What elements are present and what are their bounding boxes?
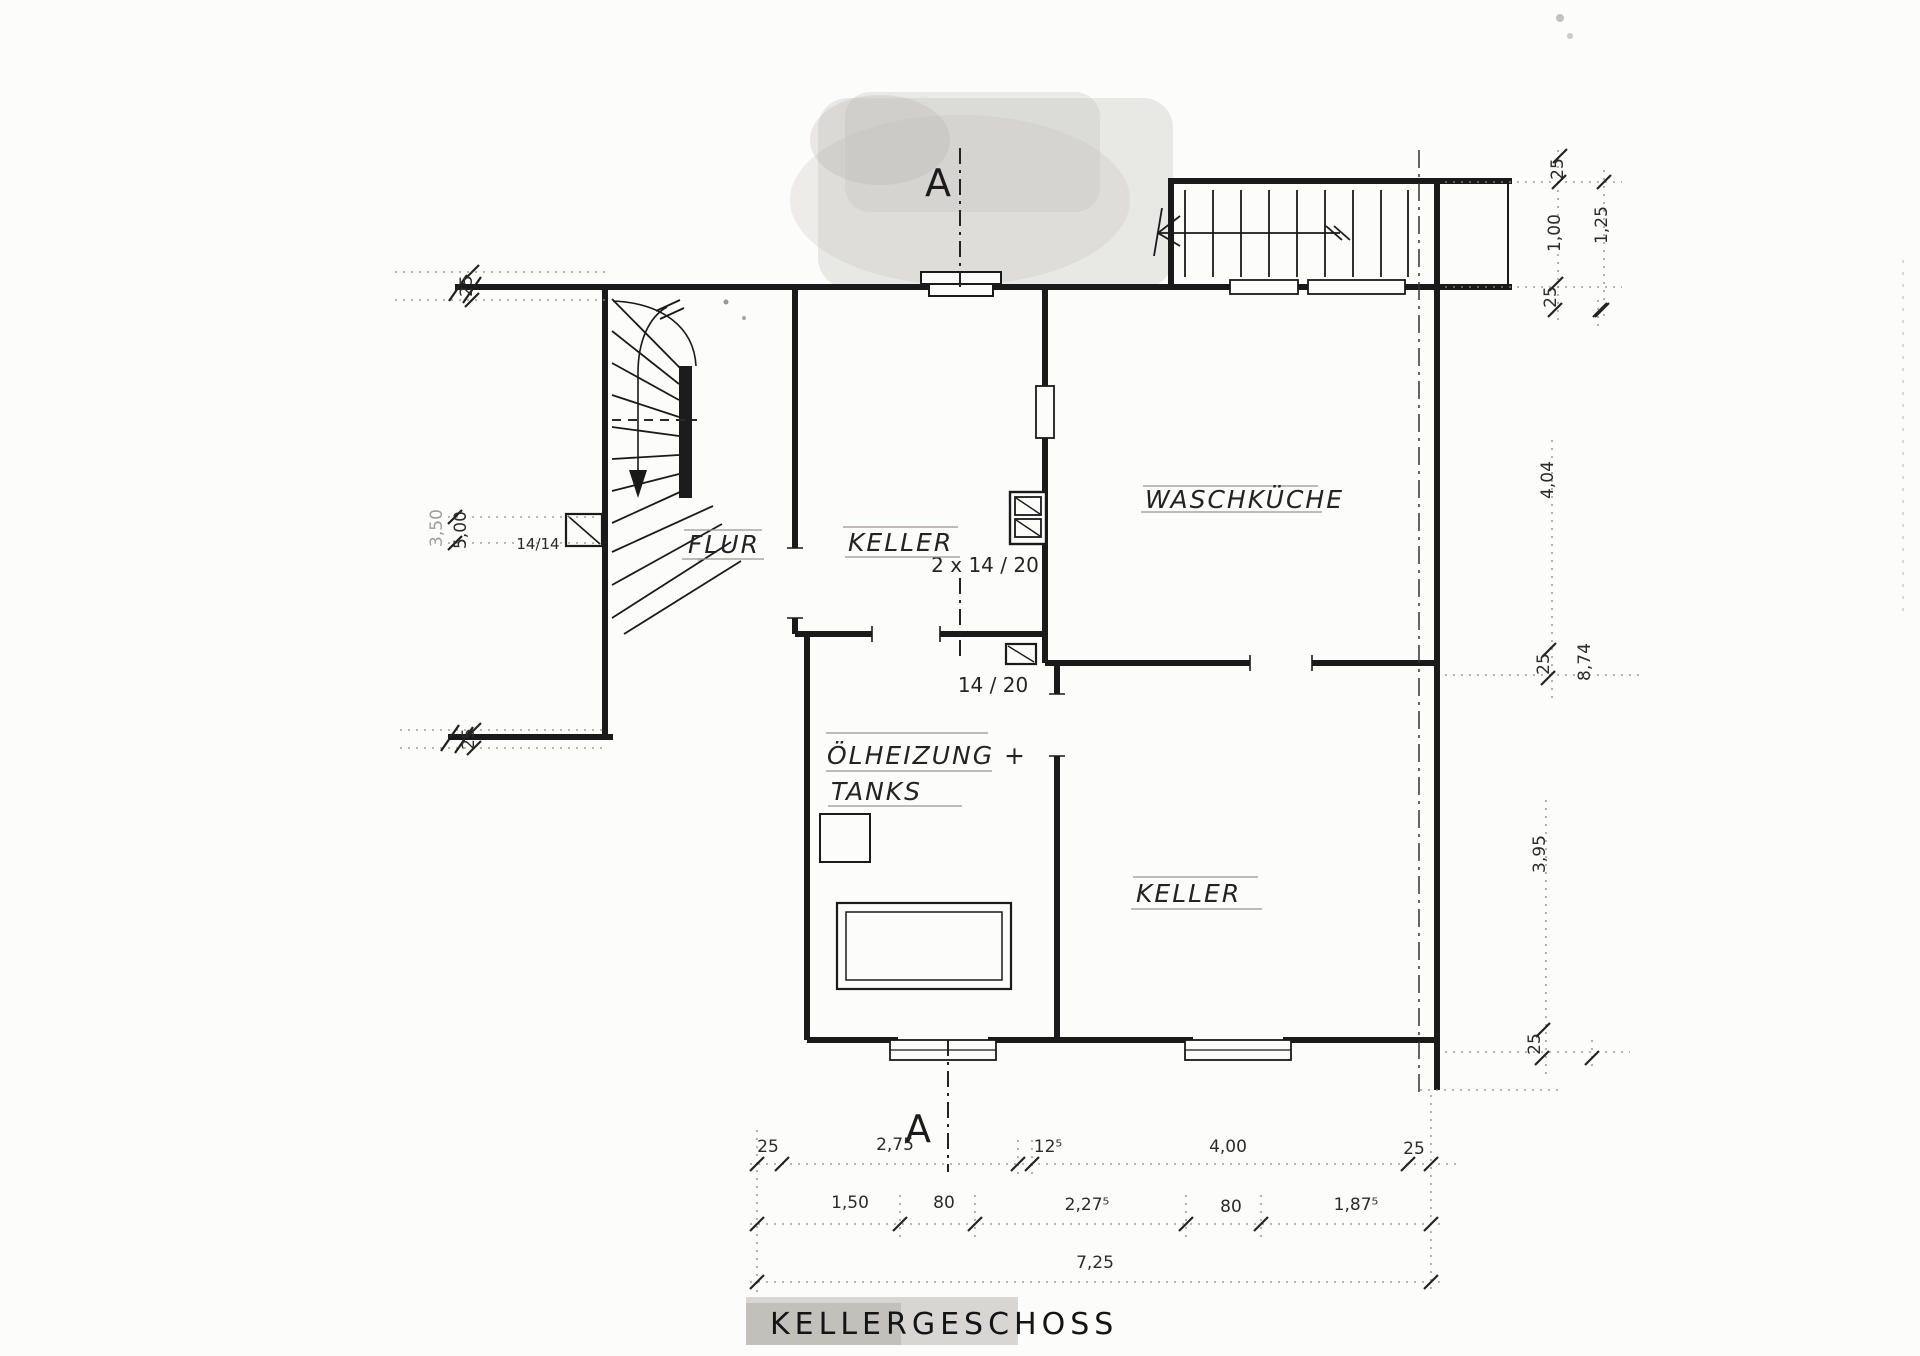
drawing-title: KELLERGESCHOSS bbox=[770, 1307, 1118, 1342]
oil-tanks bbox=[820, 814, 1011, 989]
window-sill bbox=[1230, 280, 1298, 294]
stair-treads bbox=[612, 299, 741, 634]
dim-left-500: 5,00 bbox=[451, 511, 471, 549]
dim-right-100: 1,00 bbox=[1545, 214, 1565, 252]
interior-stairs bbox=[612, 299, 741, 634]
tank-bund-outer bbox=[837, 903, 1011, 989]
exterior-stairs bbox=[1154, 190, 1408, 277]
window-sill bbox=[1308, 280, 1405, 294]
dim-row1-125: 12⁵ bbox=[1034, 1137, 1062, 1157]
ruled-lines bbox=[682, 486, 1322, 909]
dim-row1-25l: 25 bbox=[757, 1137, 779, 1157]
dim-row1-25r: 25 bbox=[1403, 1139, 1425, 1159]
tank-bund-inner bbox=[846, 912, 1002, 980]
room-label-tanks: TANKS bbox=[831, 777, 922, 806]
floor-plan-drawing: A A 25 1,00 25 1,25 4,04 25 8,74 3,95 25… bbox=[0, 0, 1920, 1356]
chimney-labels: 2 x 14 / 20 14 / 20 bbox=[931, 553, 1039, 697]
scan-speck bbox=[1567, 33, 1573, 39]
room-label-flur: FLUR bbox=[688, 530, 760, 559]
dim-right-25-d: 25 bbox=[1525, 1033, 1545, 1055]
dim-right-125: 1,25 bbox=[1592, 206, 1612, 244]
dim-row1-275: 2,75 bbox=[876, 1135, 914, 1155]
exterior-interior-walls bbox=[448, 181, 1512, 1090]
stair-walk-start-ticks bbox=[656, 300, 684, 319]
dim-row2-80r: 80 bbox=[1220, 1197, 1242, 1217]
dimension-labels-bottom: 25 2,75 12⁵ 4,00 25 1,50 80 2,27⁵ 80 1,8… bbox=[757, 1135, 1425, 1273]
room-labels: FLUR KELLER WASCHKÜCHE ÖLHEIZUNG + TANKS… bbox=[682, 485, 1344, 909]
dimension-labels-right: 25 1,00 25 1,25 4,04 25 8,74 3,95 25 bbox=[1525, 158, 1612, 1055]
dim-row2-2275: 2,27⁵ bbox=[1065, 1195, 1110, 1215]
room-label-keller-top: KELLER bbox=[848, 528, 953, 557]
dim-row1-400: 4,00 bbox=[1209, 1137, 1247, 1157]
stair-walk-line bbox=[638, 307, 667, 471]
stair-newel-post bbox=[679, 366, 692, 498]
door-jambs bbox=[787, 548, 1312, 756]
dim-left-25-bottom: 25 bbox=[459, 728, 479, 750]
dim-right-25-b: 25 bbox=[1541, 286, 1561, 308]
dimension-labels-left: 25 5,00 3,50 25 14/14 bbox=[427, 275, 560, 750]
room-label-waschkueche: WASCHKÜCHE bbox=[1145, 485, 1344, 514]
title-block: KELLERGESCHOSS bbox=[746, 1297, 1118, 1345]
dim-right-874: 8,74 bbox=[1575, 643, 1595, 681]
dim-row2-80l: 80 bbox=[933, 1193, 955, 1213]
scan-speck bbox=[1556, 14, 1564, 22]
stair-walk-arrowhead bbox=[629, 470, 647, 498]
room-label-oelheizung: ÖLHEIZUNG + bbox=[827, 741, 1027, 770]
room-label-keller-bottom: KELLER bbox=[1136, 879, 1241, 908]
chimney-label-1414: 14/14 bbox=[516, 535, 559, 553]
walls bbox=[448, 181, 1512, 1090]
dim-left-25-top: 25 bbox=[457, 275, 477, 297]
small-tank bbox=[820, 814, 870, 862]
dim-right-25-c: 25 bbox=[1534, 653, 1554, 675]
scanned-floor-plan-page: A A 25 1,00 25 1,25 4,04 25 8,74 3,95 25… bbox=[0, 0, 1920, 1356]
dim-row2-1875: 1,87⁵ bbox=[1334, 1195, 1379, 1215]
dim-row3-725: 7,25 bbox=[1076, 1253, 1114, 1273]
scan-speck bbox=[724, 300, 729, 305]
scan-speck bbox=[742, 316, 746, 320]
dim-right-404: 4,04 bbox=[1538, 461, 1558, 499]
dim-left-partial: 3,50 bbox=[427, 509, 447, 547]
dim-right-25-top: 25 bbox=[1548, 158, 1568, 180]
chimney-label-1420: 14 / 20 bbox=[958, 673, 1028, 697]
dim-right-395: 3,95 bbox=[1530, 835, 1550, 873]
dim-row2-150: 1,50 bbox=[831, 1193, 869, 1213]
section-marker-a-top: A bbox=[925, 161, 951, 205]
extension-lines-dotted bbox=[395, 150, 1640, 1292]
dimension-lines bbox=[395, 149, 1640, 1292]
door-jamb-lines bbox=[787, 548, 1312, 756]
stair-top-arc bbox=[613, 301, 696, 366]
window-frame bbox=[1036, 386, 1054, 438]
